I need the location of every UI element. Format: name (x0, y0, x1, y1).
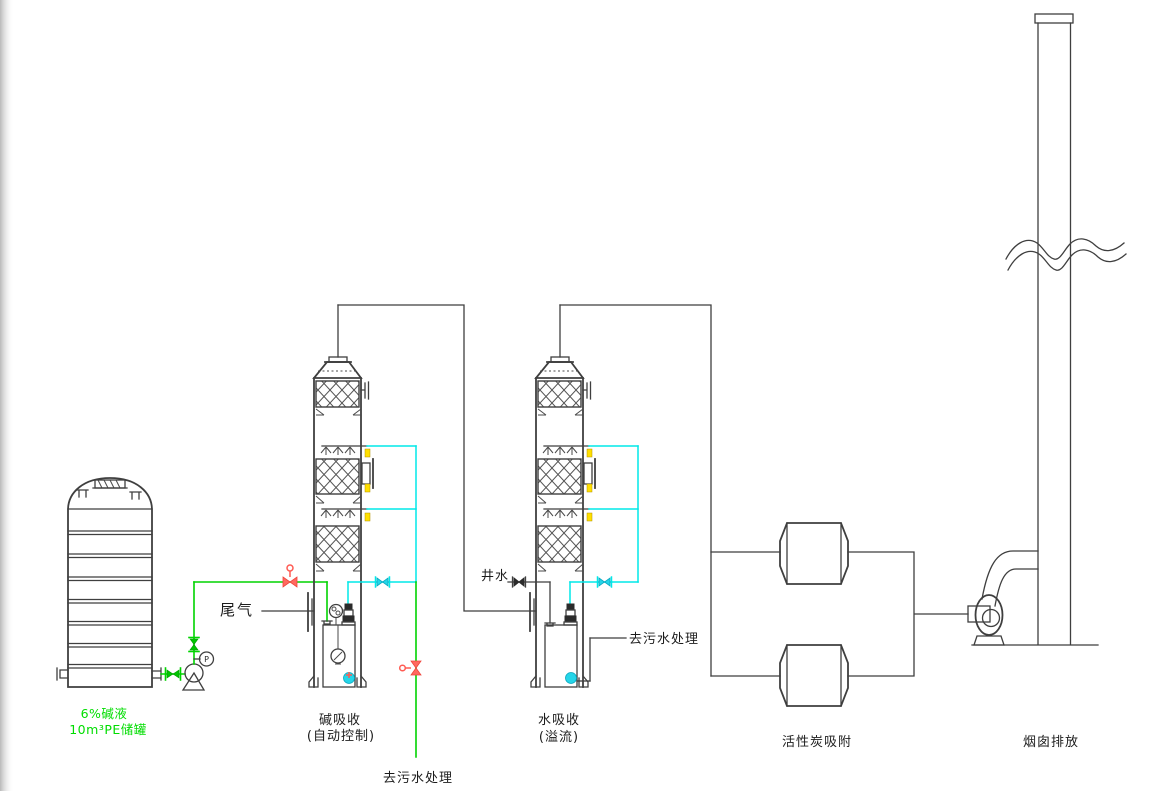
tank-label-line2: 10m³PE储罐 (69, 722, 147, 737)
tower1-label: 碱吸收 (319, 713, 361, 728)
valve-icon (513, 577, 526, 587)
carbon-adsorber-bottom (780, 645, 848, 706)
tank-ribs (68, 531, 152, 668)
window-edge (0, 0, 14, 791)
fan-outlet-duct (982, 551, 1038, 599)
wastewater-bottom-label: 去污水处理 (383, 771, 453, 786)
tank-nozzle-icon (77, 490, 141, 499)
tower1-drain-line (400, 582, 421, 757)
tower2-label: 水吸收 (538, 713, 580, 728)
tail-gas-inlet: 尾气 (220, 601, 308, 619)
well-water-label: 井水 (481, 569, 509, 584)
gauge-letter: P (204, 655, 209, 664)
cad-screenshot: P 尾气 (0, 0, 1162, 791)
alkali-absorption-tower (308, 305, 416, 687)
ph-meter-icon (331, 625, 345, 664)
tower2-mode-label: (溢流) (539, 730, 579, 745)
feed-pump-icon (183, 664, 204, 690)
alkali-feed-line: P (161, 565, 332, 690)
pfd-canvas: P 尾气 (0, 0, 1162, 791)
carbon-adsorber-top (780, 523, 848, 584)
well-water-line: 井水 (481, 569, 555, 626)
valve-icon (166, 668, 181, 680)
tank-label-line1: 6%碱液 (81, 706, 128, 721)
valve-icon (189, 638, 199, 652)
carbon-unit-label: 活性炭吸附 (782, 735, 852, 750)
control-valve-red-icon (283, 565, 297, 587)
break-symbol-icon (1006, 239, 1126, 270)
exhaust-fan-icon (968, 551, 1038, 645)
tail-gas-label: 尾气 (220, 601, 254, 619)
tank-outlet-icon (57, 668, 161, 680)
activated-carbon-unit (711, 523, 968, 706)
level-instrument-icon (330, 605, 343, 626)
tower1-mode-label: (自动控制) (307, 729, 375, 744)
wastewater-right-label: 去污水处理 (629, 632, 699, 647)
overflow-line: 去污水处理 (577, 632, 699, 681)
stack-label: 烟囱排放 (1023, 735, 1079, 750)
chimney (972, 14, 1126, 645)
tank-manway-icon (93, 480, 127, 488)
pe-storage-tank (57, 478, 161, 687)
gas-duct-tower1-to-tower2 (338, 305, 530, 611)
drain-valve-red-icon (400, 661, 421, 675)
water-absorption-tower (530, 305, 638, 687)
